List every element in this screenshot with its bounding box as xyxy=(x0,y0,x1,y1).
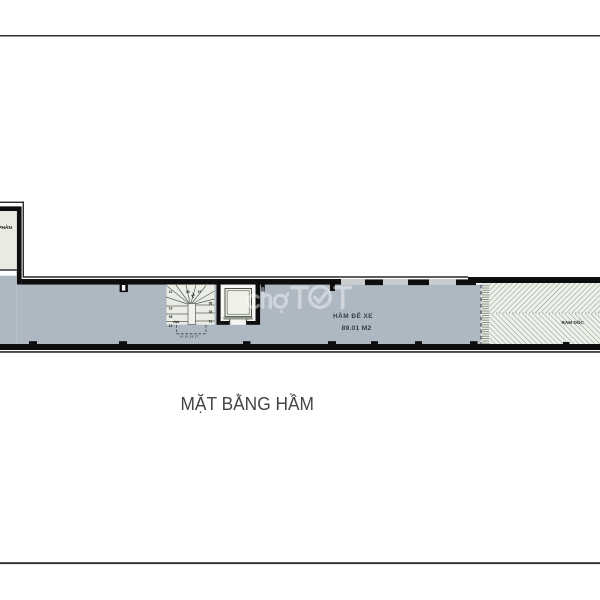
svg-text:01: 01 xyxy=(209,319,213,323)
svg-text:RAM DỐC: RAM DỐC xyxy=(562,319,585,325)
svg-text:03: 03 xyxy=(209,310,213,314)
svg-text:10: 10 xyxy=(169,306,173,310)
svg-text:09: 09 xyxy=(186,290,190,294)
svg-text:89.01 M2: 89.01 M2 xyxy=(342,325,372,332)
svg-text:11: 11 xyxy=(169,290,173,294)
svg-text:05: 05 xyxy=(209,301,213,305)
svg-text:07: 07 xyxy=(198,290,202,294)
svg-text:MẶT BẰNG HẦM: MẶT BẰNG HẦM xyxy=(181,393,315,414)
svg-text:09: 09 xyxy=(169,315,173,319)
svg-text:12: 12 xyxy=(169,324,173,328)
